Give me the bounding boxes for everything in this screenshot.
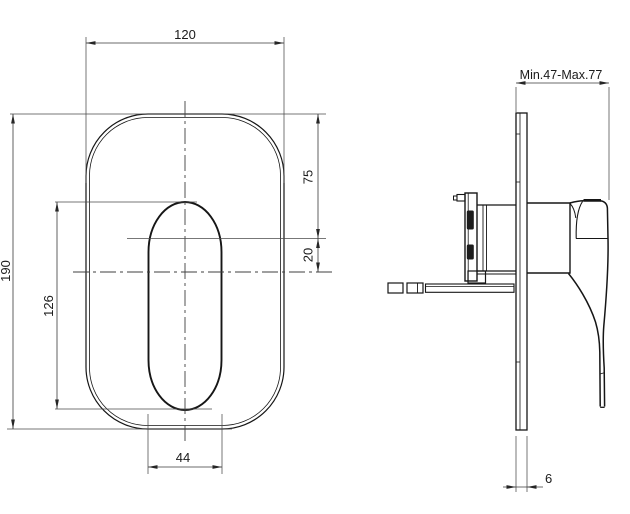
dim-handle-width-label: 44 [176, 450, 190, 465]
brand-mark [467, 245, 474, 260]
dim-plate-thickness-label: 6 [545, 471, 552, 486]
rough-in-flange [465, 193, 477, 281]
dim-handle-height-label: 126 [41, 295, 56, 317]
dim-plate-height-label: 190 [0, 260, 13, 282]
plate-edge [516, 113, 527, 430]
technical-drawing-sheet: 120 190 126 75 20 [0, 0, 630, 514]
valve-body [468, 205, 516, 283]
dim-center-from-top-label: 75 [301, 170, 316, 184]
dim-plate-thickness: 6 [503, 436, 552, 492]
supply-pipe [388, 283, 514, 293]
dim-center-from-top: 75 20 [301, 114, 320, 272]
dim-plate-width-label: 120 [174, 27, 196, 42]
dim-depth-range-label: Min.47-Max.77 [520, 68, 603, 82]
handle-lever [569, 200, 609, 407]
dim-depth-range: Min.47-Max.77 [516, 68, 609, 200]
side-view: Min.47-Max.77 6 [388, 68, 609, 492]
dim-center-offset-label: 20 [301, 248, 316, 262]
handle-hub [528, 203, 571, 273]
front-view: 120 190 126 75 20 [0, 27, 335, 474]
drawing-canvas: 120 190 126 75 20 [0, 0, 630, 514]
flange-screw [457, 195, 465, 202]
dim-plate-height: 190 [0, 114, 326, 429]
brand-mark [467, 211, 474, 230]
dim-handle-height: 126 [41, 202, 212, 409]
dim-handle-width: 44 [148, 414, 222, 474]
